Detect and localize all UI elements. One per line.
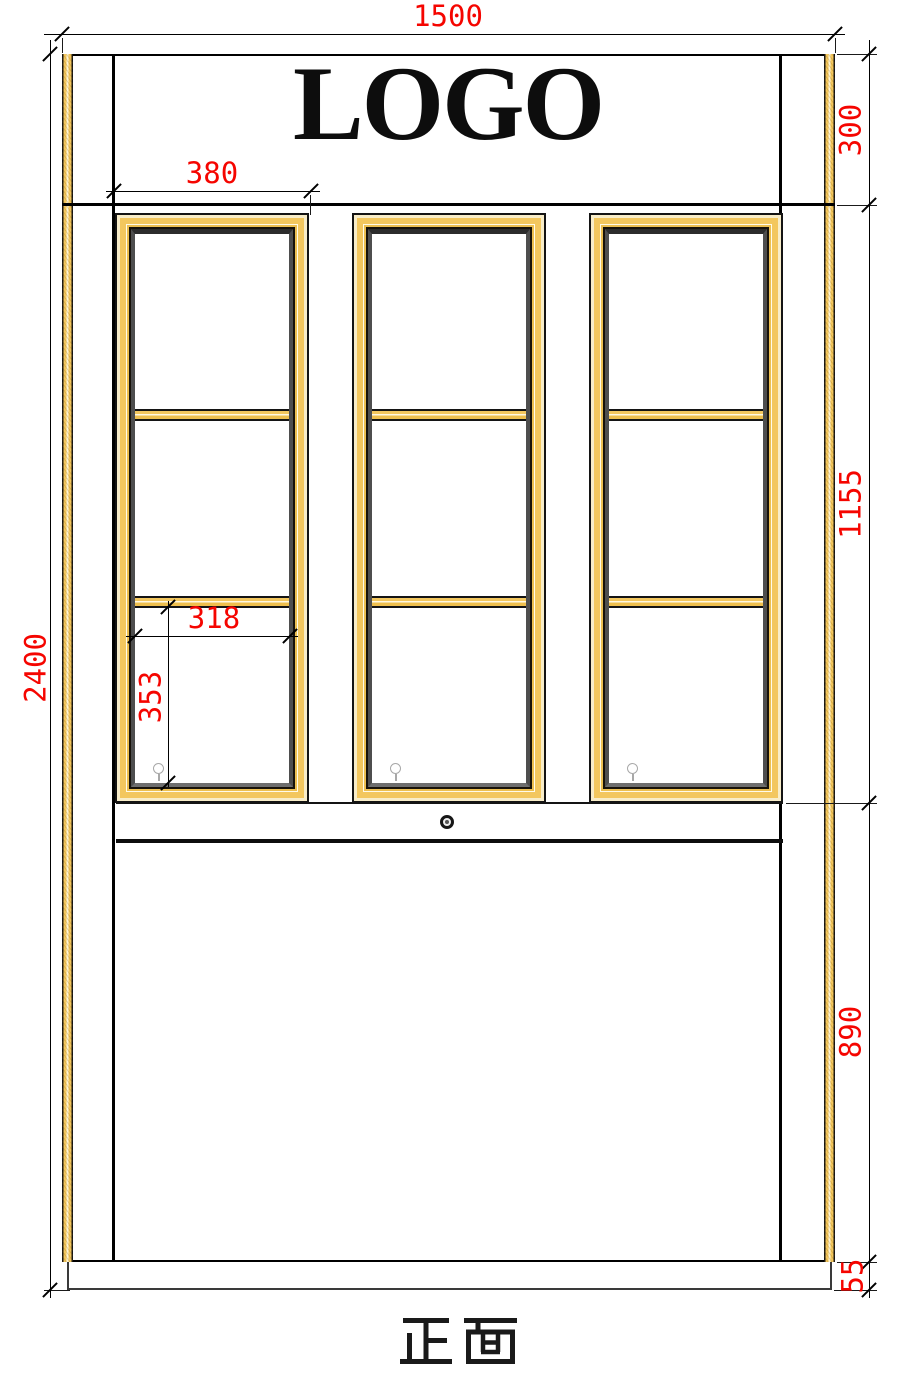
- left-side-panel: [62, 54, 73, 1262]
- dimension-value: 353: [137, 671, 166, 723]
- view-label-glyphs: [399, 1316, 521, 1366]
- shelf-muntin: [609, 409, 763, 421]
- flap-top-line: [116, 802, 783, 804]
- dimension-value: 1155: [837, 469, 866, 539]
- base-plinth: [67, 1262, 832, 1290]
- logo-text: LOGO: [293, 51, 603, 157]
- dimension-value: 300: [837, 104, 866, 156]
- view-label: 正面: [399, 1316, 521, 1370]
- door-frame: [354, 215, 544, 801]
- right-side-panel: [824, 54, 835, 1262]
- door-knob-icon: [627, 763, 639, 782]
- door-knob-icon: [153, 763, 165, 782]
- glass-door-2: [352, 213, 546, 803]
- shelf-muntin: [135, 409, 289, 421]
- counter-edge-line: [116, 839, 783, 843]
- header-divider: [62, 203, 835, 206]
- shelf-muntin: [609, 596, 763, 608]
- door-knob-icon: [390, 763, 402, 782]
- door-glass: [609, 234, 763, 783]
- door-frame: [591, 215, 781, 801]
- shelf-muntin: [372, 596, 526, 608]
- dimension-value: 1500: [413, 2, 483, 31]
- glass-door-3: [589, 213, 783, 803]
- dimension-value: 55: [839, 1259, 868, 1294]
- dimension-value: 890: [837, 1006, 866, 1058]
- dimension-value: 318: [188, 604, 240, 633]
- dimension-value: 380: [186, 159, 238, 188]
- elevation-drawing: LOGO: [0, 0, 900, 1379]
- lock-icon: [440, 815, 454, 829]
- shelf-muntin: [372, 409, 526, 421]
- door-glass: [372, 234, 526, 783]
- dimension-value: 2400: [22, 633, 51, 703]
